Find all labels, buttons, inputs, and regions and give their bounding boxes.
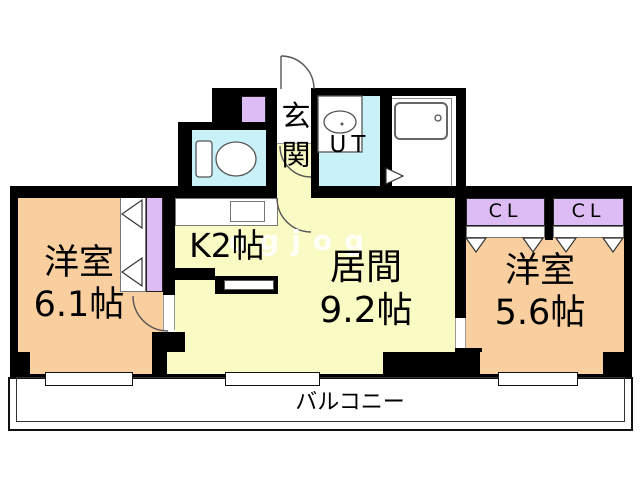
wall-segment: [311, 88, 466, 96]
label-entrance: 玄関: [278, 97, 314, 175]
wall-segment: [455, 186, 466, 318]
wall-segment: [624, 186, 632, 377]
wall-segment: [266, 96, 277, 198]
closet-right-a-door-track: [466, 226, 545, 238]
label-closet-right: CL: [553, 200, 624, 223]
door-opening-bedroom-left: [163, 295, 175, 330]
entrance-door-arc: [281, 56, 314, 89]
room-toilet: [190, 128, 268, 190]
closet-right-b-door-track: [553, 226, 624, 238]
shoe-cabinet: [240, 96, 266, 124]
wall-segment: [456, 88, 466, 198]
label-bedroom-left: 洋室 6.1帖: [14, 242, 144, 326]
label-kitchen: K2帖: [172, 226, 282, 266]
door-opening-bedroom-right: [455, 318, 466, 348]
label-bedroom-left-name: 洋室: [14, 242, 144, 284]
wall-segment: [545, 192, 553, 240]
label-living-size: 9.2帖: [286, 289, 446, 332]
wall-segment: [168, 268, 215, 280]
label-bedroom-left-size: 6.1帖: [14, 284, 144, 326]
label-closet-left: CL: [466, 200, 545, 223]
label-balcony: バルコニー: [230, 390, 470, 416]
floorplan: ogjog 玄関 UT K2帖 居間 9.2帖 洋室 6.1帖 洋室 5.6帖 …: [0, 0, 640, 480]
bathtub-icon: [394, 102, 448, 140]
window-bedroom-left: [45, 372, 133, 386]
label-utility: UT: [317, 132, 383, 160]
label-bedroom-right: 洋室 5.6帖: [470, 250, 610, 334]
label-living-name: 居間: [286, 246, 446, 289]
floor-tab-living: [167, 352, 383, 374]
window-bedroom-right: [498, 372, 578, 386]
label-living: 居間 9.2帖: [286, 246, 446, 332]
kitchen-pass-through: [224, 280, 274, 290]
label-bedroom-right-size: 5.6帖: [470, 292, 610, 334]
floor-tab-bedroom-right: [480, 352, 603, 374]
wall-segment: [10, 186, 277, 198]
window-living: [225, 372, 320, 386]
wall-segment: [212, 88, 277, 96]
wall-segment: [311, 186, 632, 198]
floor-tab-bedroom-left: [30, 352, 152, 374]
kitchen-sink: [230, 201, 265, 222]
closet-left: [146, 196, 163, 292]
label-bedroom-right-name: 洋室: [470, 250, 610, 292]
